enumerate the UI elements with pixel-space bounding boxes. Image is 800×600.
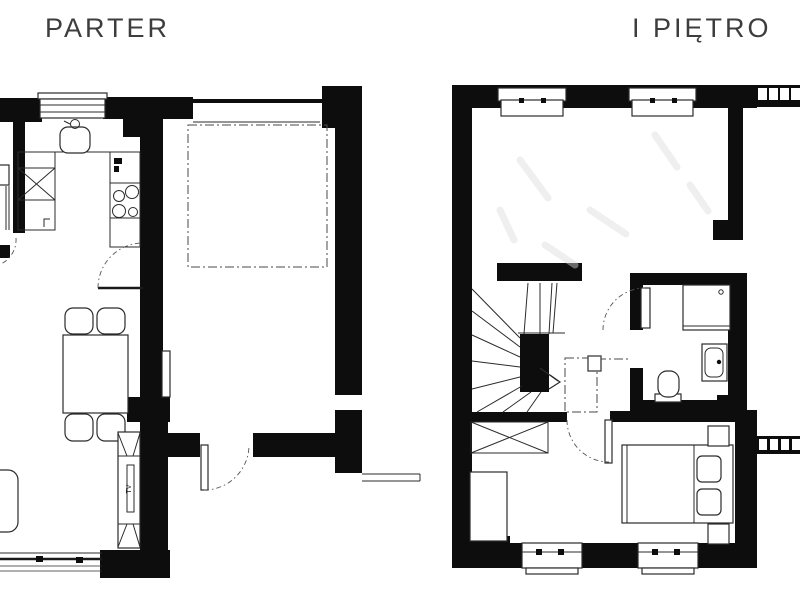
chimney <box>588 356 601 371</box>
floor-plans-drawing: PARTER <box>0 0 800 600</box>
floor-label-pietro: I PIĘTRO <box>632 13 772 43</box>
pillow <box>697 489 721 515</box>
shower <box>683 285 730 330</box>
room-texture <box>500 135 708 265</box>
terrace-step <box>362 474 420 481</box>
pietro-window-top-right <box>629 88 696 116</box>
open-door-leaf <box>162 351 170 397</box>
chair <box>65 308 93 334</box>
kitchen <box>18 120 143 289</box>
parter-walls <box>0 86 362 578</box>
bedroom-door <box>567 420 612 463</box>
double-bed <box>622 445 733 523</box>
toilet <box>655 371 681 402</box>
pietro-window-bottom-left <box>522 543 582 574</box>
pietro-window-top-left <box>498 88 566 116</box>
balcony-railing-right <box>755 436 800 454</box>
kitchen-door <box>98 243 143 288</box>
tv-label: TV <box>126 484 133 493</box>
dining-set <box>63 308 128 441</box>
floor-plan-pietro: I PIĘTRO <box>452 13 800 574</box>
garage-opening <box>192 101 322 122</box>
garage-dashed-outline <box>188 125 327 267</box>
bathroom <box>603 285 730 402</box>
stove-burners-icon <box>113 186 139 218</box>
pietro-window-bottom-right <box>638 543 698 574</box>
balcony-railing-top <box>755 85 800 107</box>
parter-window-bottom <box>0 553 102 571</box>
kitchen-cabinets-right <box>110 152 140 247</box>
floor-plan-parter: PARTER <box>0 13 420 578</box>
nightstand <box>708 524 729 544</box>
chair <box>65 414 93 441</box>
tv-cabinet: TV <box>118 432 140 548</box>
bathroom-door <box>603 288 650 330</box>
washbasin <box>702 344 727 381</box>
dining-table <box>63 335 128 413</box>
floor-plan-page: PARTER <box>0 0 800 600</box>
stair-newel-post <box>520 334 549 392</box>
kitchen-sink-icon <box>60 120 90 154</box>
stair-treads <box>472 283 565 412</box>
chair <box>97 308 125 334</box>
bedroom <box>567 420 733 544</box>
floor-label-parter: PARTER <box>45 13 170 43</box>
garage-door <box>201 445 249 490</box>
pillow <box>697 456 721 482</box>
void-x-box <box>471 422 548 453</box>
nightstand <box>708 426 729 446</box>
wardrobe <box>470 472 507 541</box>
sofa <box>0 470 18 532</box>
winder-staircase <box>472 283 565 412</box>
parter-window-top <box>38 93 107 118</box>
